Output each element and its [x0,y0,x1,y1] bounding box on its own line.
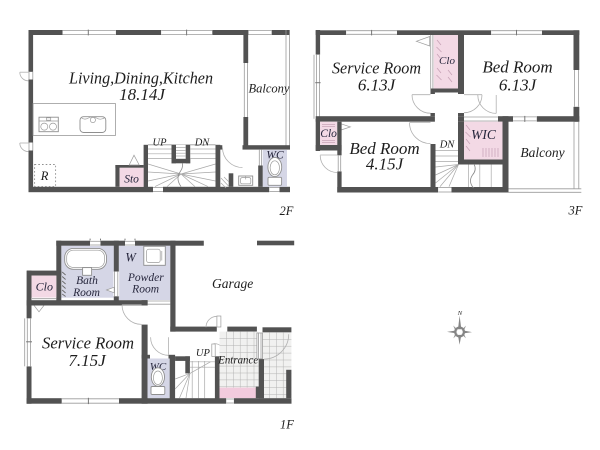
svg-text:R: R [40,169,49,183]
svg-text:6.13J: 6.13J [358,76,397,95]
svg-text:Service Room: Service Room [42,334,134,353]
svg-text:4.15J: 4.15J [366,155,405,174]
svg-text:UP: UP [196,348,211,359]
svg-text:UP: UP [153,137,168,148]
svg-text:W: W [125,250,137,264]
svg-text:18.14J: 18.14J [119,85,166,104]
svg-text:6.13J: 6.13J [499,76,538,95]
svg-text:Balcony: Balcony [249,82,290,96]
svg-text:Clo: Clo [320,128,337,140]
svg-text:Sto: Sto [124,174,139,186]
svg-text:Entrance: Entrance [217,352,259,366]
svg-text:Clo: Clo [36,279,53,293]
svg-text:Clo: Clo [439,55,455,67]
svg-text:3F: 3F [568,204,583,218]
svg-text:Balcony: Balcony [520,145,564,160]
svg-text:Room: Room [72,287,100,299]
svg-text:2F: 2F [280,204,294,218]
svg-text:7.15J: 7.15J [68,351,107,370]
svg-text:Powder: Powder [127,272,164,284]
svg-text:DN: DN [194,137,211,148]
svg-text:Bed Room: Bed Room [482,58,552,77]
svg-text:1F: 1F [280,418,294,432]
svg-text:Garage: Garage [212,276,253,291]
svg-text:DN: DN [439,139,456,150]
svg-text:N: N [457,310,463,317]
svg-text:Bath: Bath [76,275,98,287]
svg-text:WIC: WIC [471,127,497,142]
svg-text:Room: Room [131,284,159,296]
